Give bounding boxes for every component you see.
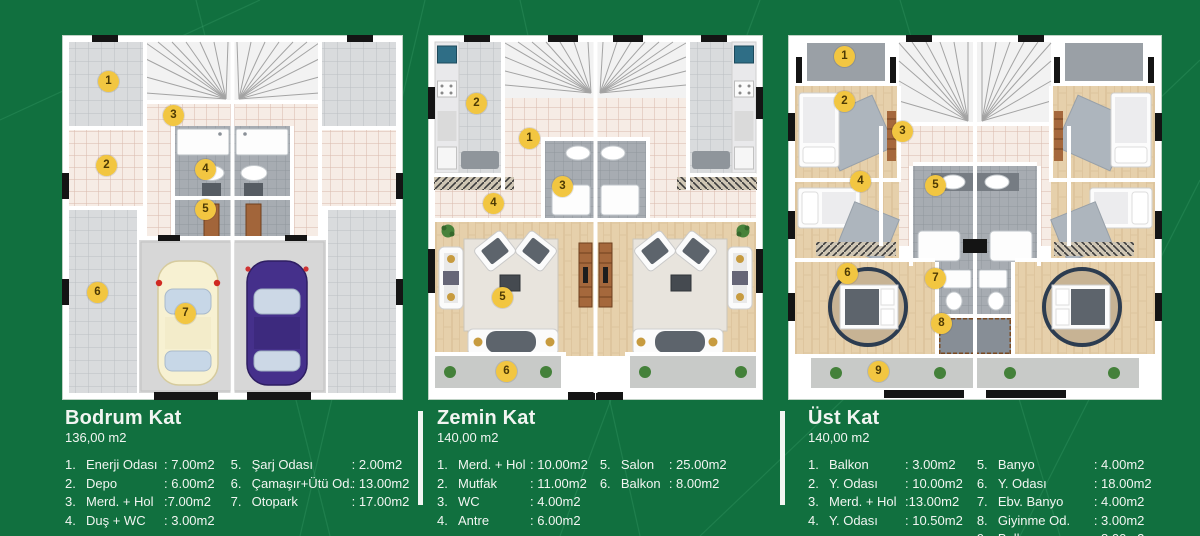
room-number-badge: 3 — [892, 121, 913, 142]
item-value: : 4.00m2 — [1094, 456, 1145, 475]
item-name: Banyo — [998, 456, 1094, 475]
item-value: : 10.00m2 — [530, 456, 588, 475]
sink — [566, 146, 590, 160]
legend-item: 1.Balkon: 3.00m2 — [808, 456, 963, 475]
item-name: Merd. + Hol — [86, 493, 164, 512]
stove — [438, 81, 457, 97]
item-name: Enerji Odası — [86, 456, 164, 475]
item-number: 5. — [231, 456, 252, 475]
legend-item: 3.Merd. + Hol:13.00m2 — [808, 493, 963, 512]
item-name: Y. Odası — [829, 512, 905, 531]
item-name: Balkon — [998, 530, 1094, 536]
item-number: 8. — [977, 512, 998, 531]
room-number-badge: 4 — [483, 193, 504, 214]
item-number: 4. — [808, 512, 829, 531]
room-number-badge: 7 — [175, 303, 196, 324]
item-value: : 4.00m2 — [1094, 493, 1145, 512]
legend-item: 5.Banyo: 4.00m2 — [977, 456, 1152, 475]
item-number: 4. — [65, 512, 86, 531]
item-name: Y. Odası — [998, 475, 1094, 494]
room-number-badge: 6 — [837, 263, 858, 284]
item-name: Merd. + Hol — [829, 493, 905, 512]
item-number: 9. — [977, 530, 998, 536]
kitchen-sink — [438, 46, 457, 63]
item-value: : 6.00m2 — [164, 475, 215, 494]
item-number: 2. — [437, 475, 458, 494]
item-value: : 11.00m2 — [530, 475, 587, 494]
item-name: Balkon — [829, 456, 905, 475]
bed — [840, 285, 898, 329]
legend-item: 8.Giyinme Od.: 3.00m2 — [977, 512, 1152, 531]
room-number-badge: 3 — [552, 176, 573, 197]
room-number-badge: 9 — [868, 361, 889, 382]
item-number: 4. — [437, 512, 458, 531]
legend-divider — [418, 411, 423, 505]
item-value: :13.00m2 — [905, 493, 959, 512]
bathtub — [918, 231, 960, 261]
room-number-badge: 2 — [96, 155, 117, 176]
item-value: : 2.00m2 — [352, 456, 403, 475]
doormat — [816, 242, 896, 256]
item-value: : 25.00m2 — [669, 456, 727, 475]
legend-item: 1.Merd. + Hol: 10.00m2 — [437, 456, 588, 475]
sofa-bottom — [468, 329, 558, 355]
legend-bodrum-kat: Bodrum Kat 136,00 m2 1.Enerji Odası: 7.0… — [65, 407, 409, 530]
floorplan-zemin-kat — [428, 35, 763, 400]
room-number-badge: 6 — [496, 361, 517, 382]
item-number: 2. — [808, 475, 829, 494]
item-value: : 7.00m2 — [164, 456, 215, 475]
legend-item: 9.Balkon: 8.00m2 — [977, 530, 1152, 536]
plant-icon — [442, 225, 455, 238]
room-number-badge: 1 — [834, 46, 855, 67]
item-number: 5. — [977, 456, 998, 475]
laundry-room — [69, 210, 137, 393]
item-name: Y. Odası — [829, 475, 905, 494]
toilet — [946, 292, 962, 310]
item-value: : 6.00m2 — [530, 512, 581, 531]
floor-plans-page: 1 2 3 4 5 6 7 1 2 3 4 5 6 1 2 3 4 5 6 7 … — [0, 0, 1200, 536]
item-name: Giyinme Od. — [998, 512, 1094, 531]
item-number: 1. — [65, 456, 86, 475]
room-number-badge: 5 — [925, 175, 946, 196]
legend-area: 136,00 m2 — [65, 430, 409, 445]
room-number-badge: 6 — [87, 282, 108, 303]
sofa-left — [439, 247, 463, 309]
fridge — [438, 147, 457, 169]
legend-item: 3.Merd. + Hol:7.00m2 — [65, 493, 215, 512]
item-value: : 10.00m2 — [905, 475, 963, 494]
room-number-badge: 3 — [163, 105, 184, 126]
item-value: : 18.00m2 — [1094, 475, 1152, 494]
legend-item: 5.Şarj Odası: 2.00m2 — [231, 456, 410, 475]
item-value: : 8.00m2 — [669, 475, 720, 494]
item-number: 6. — [231, 475, 252, 494]
item-value: : 8.00m2 — [1094, 530, 1145, 536]
item-name: Otopark — [252, 493, 352, 512]
legend-item: 6.Çamaşır+Ütü Od.: 13.00m2 — [231, 475, 410, 494]
item-number: 3. — [808, 493, 829, 512]
room-number-badge: 4 — [195, 159, 216, 180]
item-name: Merd. + Hol — [458, 456, 530, 475]
legend-title: Üst Kat — [808, 407, 1152, 429]
item-name: Ebv. Banyo — [998, 493, 1094, 512]
legend-title: Zemin Kat — [437, 407, 727, 429]
item-name: Depo — [86, 475, 164, 494]
legend-area: 140,00 m2 — [437, 430, 727, 445]
room-number-badge: 4 — [850, 171, 871, 192]
item-number: 2. — [65, 475, 86, 494]
item-value: : 4.00m2 — [530, 493, 581, 512]
legend-item: 6.Balkon: 8.00m2 — [600, 475, 727, 494]
room-number-badge: 2 — [466, 93, 487, 114]
legend-item: 7.Otopark: 17.00m2 — [231, 493, 410, 512]
item-value: : 3.00m2 — [164, 512, 215, 531]
item-value: : 17.00m2 — [352, 493, 410, 512]
legend-item: 2.Mutfak: 11.00m2 — [437, 475, 588, 494]
item-number: 3. — [437, 493, 458, 512]
legend-item: 6.Y. Odası: 18.00m2 — [977, 475, 1152, 494]
floorplan-ust-kat — [788, 35, 1162, 400]
legend-ust-kat: Üst Kat 140,00 m2 1.Balkon: 3.00m2 2.Y. … — [808, 407, 1152, 536]
item-value: : 10.50m2 — [905, 512, 963, 531]
item-name: Mutfak — [458, 475, 530, 494]
item-name: Balkon — [621, 475, 669, 494]
item-name: Duş + WC — [86, 512, 164, 531]
legend-item: 1.Enerji Odası: 7.00m2 — [65, 456, 215, 475]
item-number: 1. — [808, 456, 829, 475]
legend-title: Bodrum Kat — [65, 407, 409, 429]
legend-item: 5.Salon: 25.00m2 — [600, 456, 727, 475]
item-name: Antre — [458, 512, 530, 531]
item-number: 3. — [65, 493, 86, 512]
legend-area: 140,00 m2 — [808, 430, 1152, 445]
item-value: : 3.00m2 — [905, 456, 956, 475]
item-number: 6. — [600, 475, 621, 494]
item-name: Şarj Odası — [252, 456, 352, 475]
legend-item: 4.Antre: 6.00m2 — [437, 512, 588, 531]
item-name: WC — [458, 493, 530, 512]
item-number: 6. — [977, 475, 998, 494]
room-number-badge: 5 — [195, 199, 216, 220]
legend-item: 3.WC: 4.00m2 — [437, 493, 588, 512]
room-number-badge: 8 — [931, 313, 952, 334]
tv-unit — [579, 243, 592, 307]
item-number: 7. — [231, 493, 252, 512]
legend-item: 7.Ebv. Banyo: 4.00m2 — [977, 493, 1152, 512]
room-number-badge: 5 — [492, 287, 513, 308]
legend-divider — [780, 411, 785, 505]
item-value: : 13.00m2 — [352, 475, 410, 494]
legend-item: 4.Duş + WC: 3.00m2 — [65, 512, 215, 531]
room-number-badge: 2 — [834, 91, 855, 112]
item-number: 1. — [437, 456, 458, 475]
legend-zemin-kat: Zemin Kat 140,00 m2 1.Merd. + Hol: 10.00… — [437, 407, 727, 530]
item-name: Salon — [621, 456, 669, 475]
item-value: :7.00m2 — [164, 493, 211, 512]
legend-item: 2.Y. Odası: 10.00m2 — [808, 475, 963, 494]
room-number-badge: 1 — [98, 71, 119, 92]
item-value: : 3.00m2 — [1094, 512, 1145, 531]
legend-item: 2.Depo: 6.00m2 — [65, 475, 215, 494]
car-purple — [245, 261, 308, 385]
item-name: Çamaşır+Ütü Od. — [252, 475, 352, 494]
item-number: 7. — [977, 493, 998, 512]
legend-item: 4.Y. Odası: 10.50m2 — [808, 512, 963, 531]
room-number-badge: 7 — [925, 268, 946, 289]
bed — [799, 93, 839, 167]
item-number: 5. — [600, 456, 621, 475]
room-number-badge: 1 — [519, 128, 540, 149]
